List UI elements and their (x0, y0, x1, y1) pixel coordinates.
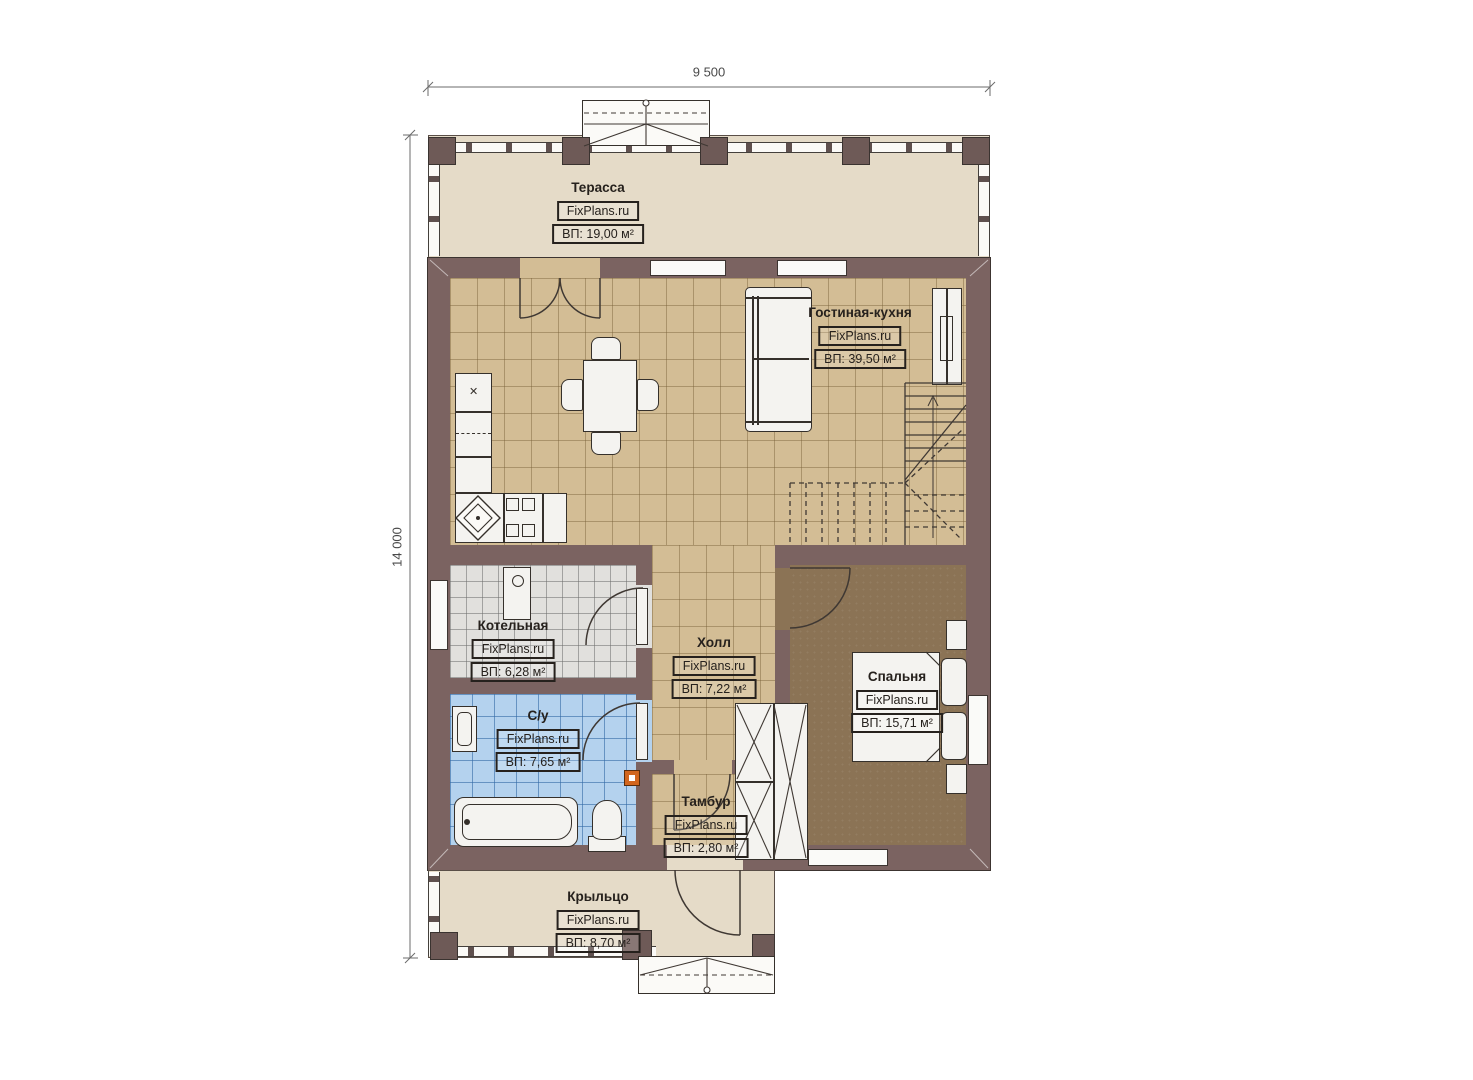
kitchen-counter-column: ✕ (455, 373, 492, 493)
counter-divider (503, 494, 505, 542)
bed-pillow (941, 712, 967, 760)
dimension-height-label: 14 000 (390, 527, 405, 567)
room-label-boiler-room: Котельная FixPlans.ru ВП: 6,28 м² (471, 618, 556, 682)
window-living-1 (650, 260, 726, 276)
sofa-backrest-line (757, 296, 759, 425)
sofa (745, 287, 812, 432)
room-area: ВП: 8,70 м² (556, 933, 641, 953)
watermark: FixPlans.ru (497, 729, 580, 749)
porch-post (752, 934, 775, 958)
room-name: Спальня (868, 669, 926, 684)
counter-divider-dashed (456, 433, 491, 434)
room-label-bathroom: С/у FixPlans.ru ВП: 7,65 м² (496, 708, 581, 772)
room-label-bedroom: Спальня FixPlans.ru ВП: 15,71 м² (851, 669, 943, 733)
bathroom-door-leaf (636, 703, 648, 760)
sofa-armrest (746, 297, 811, 299)
room-area: ВП: 7,65 м² (496, 752, 581, 772)
chair-bottom (591, 432, 621, 455)
watermark: FixPlans.ru (819, 326, 902, 346)
toilet-bowl (592, 800, 622, 840)
bathtub-inner (462, 804, 572, 840)
wardrobe-divider (773, 704, 775, 859)
electrical-box (624, 770, 640, 786)
watermark: FixPlans.ru (856, 690, 939, 710)
room-name: Тамбур (682, 794, 731, 809)
floor-plan: 9 500 14 000 ✕ (0, 0, 1473, 1080)
stove-burner (506, 498, 519, 511)
dining-table (583, 360, 637, 432)
french-door-opening (520, 258, 600, 278)
bed-pillow (941, 658, 967, 706)
sofa-backrest-line (752, 296, 754, 425)
room-name: Терасса (571, 180, 625, 195)
terrace-post (700, 137, 728, 165)
terrace-post (562, 137, 590, 165)
dimension-width-label: 9 500 (693, 65, 726, 80)
room-name: Крыльцо (567, 889, 628, 904)
counter-divider (456, 456, 491, 458)
chimney-flue (932, 288, 962, 385)
window-bedroom-bottom (808, 849, 888, 866)
room-name: Котельная (478, 618, 549, 633)
flue-centerline (946, 289, 948, 384)
room-area: ВП: 19,00 м² (552, 224, 644, 244)
terrace-post (842, 137, 870, 165)
boiler-door-leaf (636, 588, 648, 645)
room-label-vestibule: Тамбур FixPlans.ru ВП: 2,80 м² (664, 794, 749, 858)
chair-left (561, 379, 583, 411)
counter-divider (542, 494, 544, 542)
watermark: FixPlans.ru (557, 201, 640, 221)
fridge-icon: ✕ (469, 387, 478, 398)
watermark: FixPlans.ru (665, 815, 748, 835)
room-area: ВП: 39,50 м² (814, 349, 906, 369)
washbasin (452, 706, 477, 752)
room-name: Холл (697, 635, 731, 650)
room-area: ВП: 6,28 м² (471, 662, 556, 682)
stove-burner (522, 498, 535, 511)
terrace-entry-steps (582, 100, 710, 146)
chair-top (591, 337, 621, 360)
stove-burner (506, 524, 519, 537)
boiler-pipe-icon (512, 575, 524, 587)
window-bedroom-right (968, 695, 988, 765)
room-area: ВП: 7,22 м² (672, 679, 757, 699)
wardrobe-divider (736, 781, 773, 783)
room-area: ВП: 2,80 м² (664, 838, 749, 858)
nightstand-bottom (946, 764, 967, 794)
room-label-hall: Холл FixPlans.ru ВП: 7,22 м² (672, 635, 757, 699)
boiler (503, 567, 531, 620)
terrace-post (428, 137, 456, 165)
bathtub (454, 797, 578, 847)
counter-divider (456, 411, 491, 413)
room-label-living-kitchen: Гостиная-кухня FixPlans.ru ВП: 39,50 м² (808, 305, 911, 369)
bathtub-faucet (464, 819, 470, 825)
chair-right (637, 379, 659, 411)
stove-burner (522, 524, 535, 537)
electrical-box-dot (629, 775, 635, 781)
terrace-post (962, 137, 990, 165)
sofa-armrest (746, 421, 811, 423)
watermark: FixPlans.ru (673, 656, 756, 676)
room-label-porch: Крыльцо FixPlans.ru ВП: 8,70 м² (556, 889, 641, 953)
bedroom-door-opening (775, 568, 790, 630)
watermark: FixPlans.ru (472, 639, 555, 659)
window-boiler-room (430, 580, 448, 650)
room-name: Гостиная-кухня (808, 305, 911, 320)
porch-post (430, 932, 458, 960)
porch-steps (638, 956, 775, 994)
room-name: С/у (527, 708, 548, 723)
window-living-2 (777, 260, 847, 276)
watermark: FixPlans.ru (557, 910, 640, 930)
washbasin-bowl (457, 712, 472, 746)
vestibule-door-opening (674, 760, 732, 774)
room-label-terrace: Терасса FixPlans.ru ВП: 19,00 м² (552, 180, 644, 244)
sofa-seat-divider (752, 358, 809, 360)
room-area: ВП: 15,71 м² (851, 713, 943, 733)
nightstand-top (946, 620, 967, 650)
